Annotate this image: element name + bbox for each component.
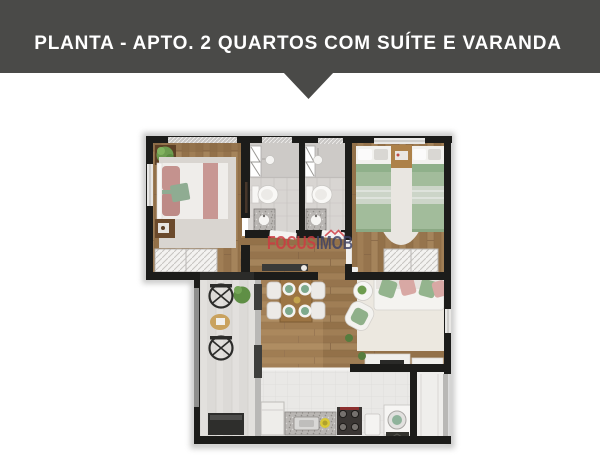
svg-text:PLANTA - APTO. 2 QUARTOS COM S: PLANTA - APTO. 2 QUARTOS COM SUÍTE E VAR… [34,32,561,54]
svg-text:FOCUS: FOCUS [267,233,316,253]
svg-text:IMOB: IMOB [316,233,353,253]
